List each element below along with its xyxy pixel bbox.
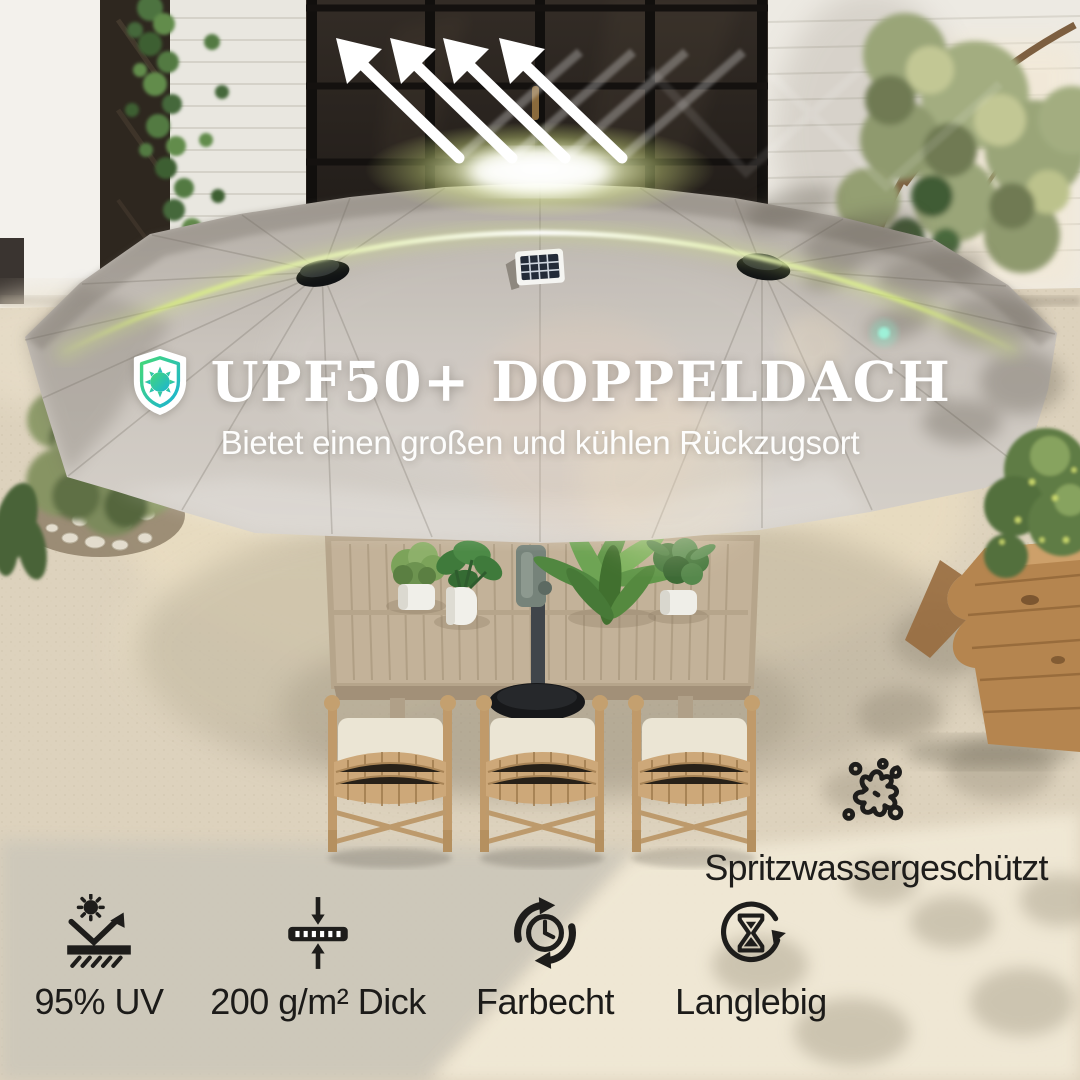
product-marketing-image: UPF50+ DOPPELDACH Bietet einen großen un… <box>0 0 1080 1080</box>
patio-scene-illustration <box>0 0 1080 1080</box>
